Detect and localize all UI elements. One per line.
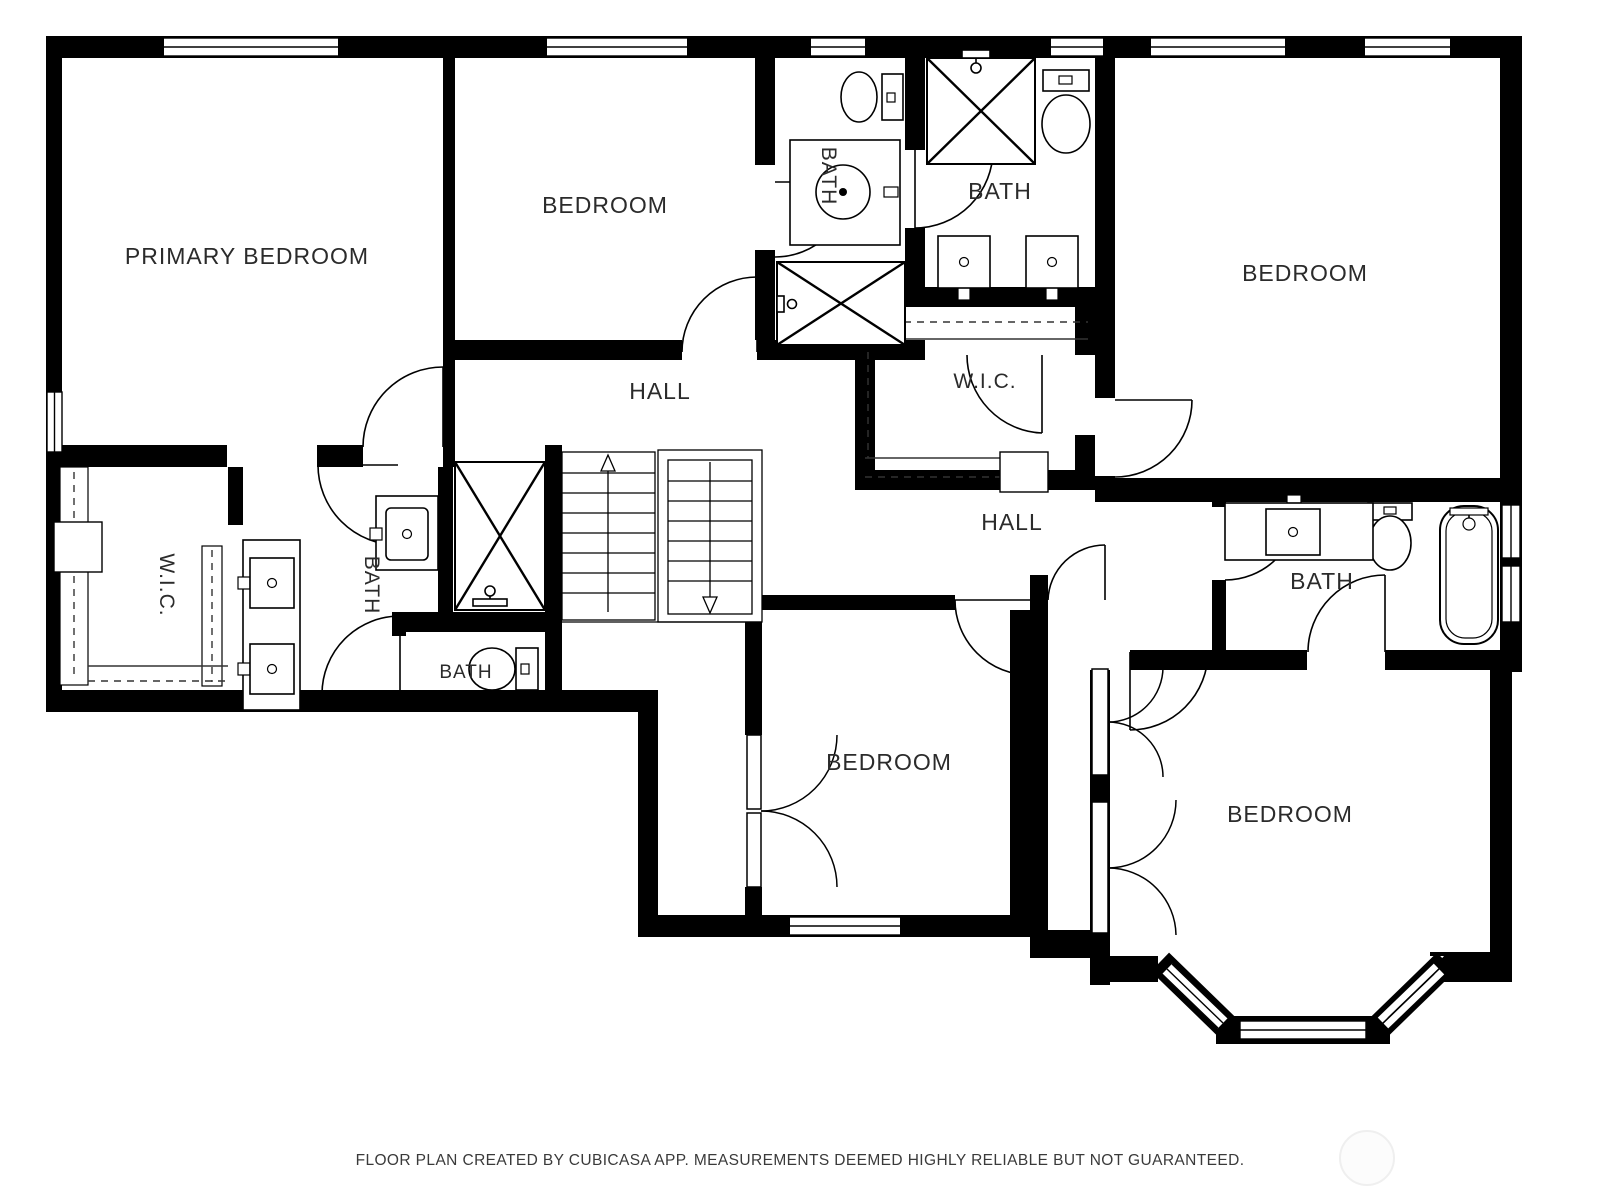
footer-disclaimer: FLOOR PLAN CREATED BY CUBICASA APP. MEAS… — [356, 1152, 1245, 1169]
label-bath-top-right: BATH — [968, 178, 1032, 204]
stairs-up-flight — [562, 452, 655, 620]
label-hall-right: HALL — [981, 509, 1043, 535]
door-primary-bedroom — [363, 367, 443, 447]
closet-doors-layer — [747, 667, 1176, 935]
toilet-top-middle — [841, 72, 903, 122]
door-bedroom-top-right — [1115, 400, 1192, 477]
label-bedroom-bottom-middle: BEDROOM — [826, 749, 952, 775]
door-bath-small — [322, 616, 400, 694]
label-bath-middle-left: BATH — [360, 556, 383, 614]
floor-plan-page: PRIMARY BEDROOM BEDROOM BATH BATH BEDROO… — [0, 0, 1600, 1200]
label-bedroom-bottom-right: BEDROOM — [1227, 801, 1353, 827]
label-bath-top-middle: BATH — [817, 147, 840, 205]
floor-plan-canvas: PRIMARY BEDROOM BEDROOM BATH BATH BEDROO… — [0, 0, 1600, 1200]
stairs-down-flight — [658, 450, 762, 622]
closet-bedroom-bottom-middle — [747, 735, 837, 887]
toilet-bath-right — [1368, 503, 1412, 570]
vanity-round-sink — [790, 140, 900, 245]
stairs — [548, 450, 762, 622]
label-bath-right: BATH — [1290, 568, 1354, 594]
toilet-top-right — [1042, 70, 1090, 153]
label-primary-bedroom: PRIMARY BEDROOM — [125, 243, 369, 269]
shower-top-middle — [777, 262, 905, 345]
cubicasa-watermark — [1340, 1131, 1394, 1185]
door-wic-right — [967, 355, 1042, 433]
window-left-wall — [47, 392, 62, 452]
bathtub — [1440, 506, 1498, 644]
label-bedroom-top-right: BEDROOM — [1242, 260, 1368, 286]
shower-left — [455, 462, 545, 610]
shower-top-right — [927, 50, 1035, 164]
bay-window — [1158, 956, 1446, 1044]
label-wic-right: W.I.C. — [953, 370, 1016, 393]
closet-bedroom-bottom-right-lower — [1092, 800, 1176, 935]
double-sink-vanity-left — [238, 540, 300, 710]
label-bath-small: BATH — [439, 662, 492, 683]
label-wic-left: W.I.C. — [155, 553, 178, 616]
label-bedroom-top-middle: BEDROOM — [542, 192, 668, 218]
label-hall-upper: HALL — [629, 378, 691, 404]
window-bedroom-bottom — [785, 916, 905, 936]
door-hall-right — [1048, 545, 1105, 600]
closet-bedroom-bottom-right-upper — [1092, 667, 1163, 777]
vanity-bath-right — [1225, 495, 1373, 560]
